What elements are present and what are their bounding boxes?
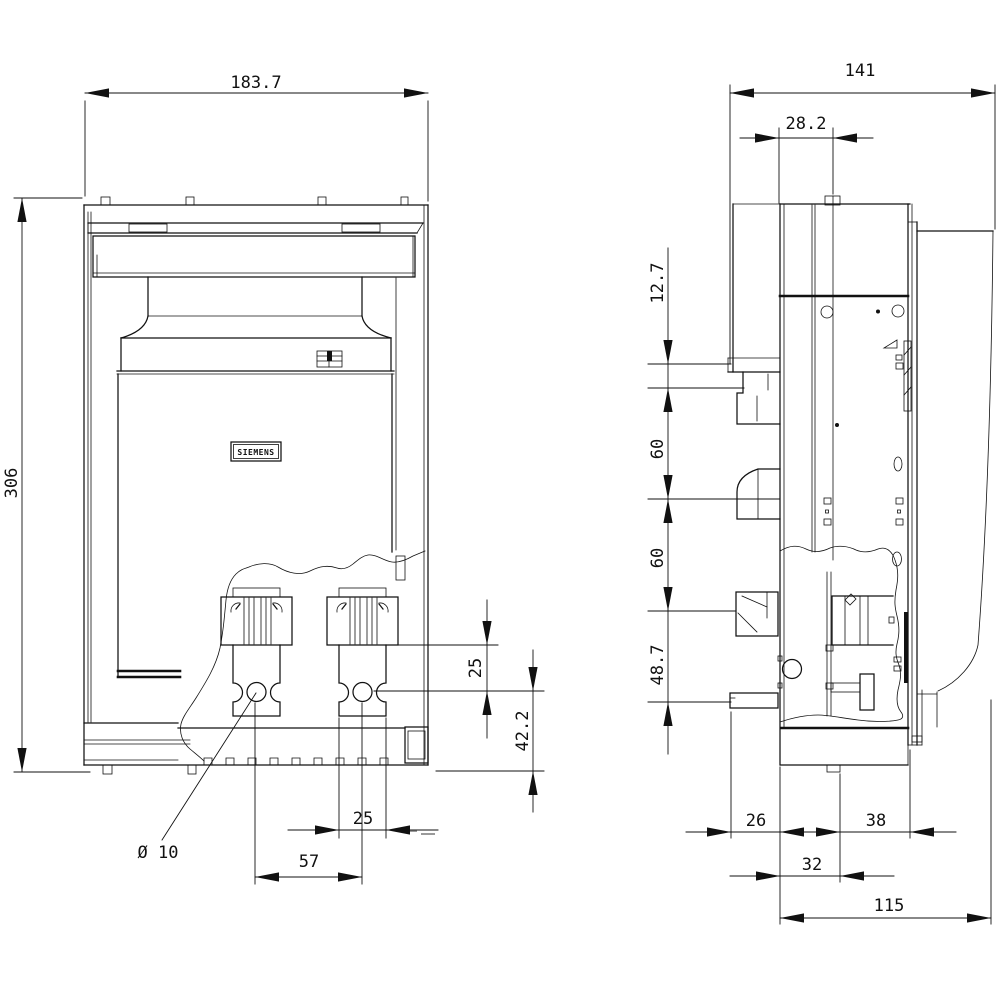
dim-label-mounting-depth: 115	[874, 896, 905, 916]
dim-label-side-depth: 141	[845, 61, 876, 81]
dim-label-base-rear: 38	[866, 811, 886, 831]
dim-side-depth: 141	[730, 61, 995, 364]
front-view: SIEMENS	[2, 73, 544, 884]
drawing-canvas: SIEMENS	[0, 0, 1000, 1000]
dim-label-bottom-terminal: 48.7	[648, 645, 668, 686]
dim-label-handle-offset: 28.2	[786, 114, 827, 134]
front-terminals	[221, 588, 398, 716]
dim-label-terminal-width: 25	[353, 809, 373, 829]
side-break-line	[780, 546, 903, 722]
dim-label-spacing-lower: 60	[648, 548, 668, 568]
din-rail-teeth	[204, 758, 388, 765]
dim-label-base-front: 26	[746, 811, 766, 831]
dim-label-terminal-pitch: 57	[299, 852, 319, 872]
dim-terminal-chain: 12.7 60 60 48.7	[648, 248, 780, 754]
dim-label-front-height: 306	[2, 468, 22, 499]
dim-hole-to-bottom: 42.2	[436, 650, 544, 812]
front-break-line	[180, 551, 425, 761]
dim-label-block-to-hole: 25	[466, 658, 486, 678]
dim-terminal-pitch: 57	[255, 703, 362, 884]
terminal-2	[327, 588, 398, 716]
vent-grid-icon	[317, 351, 342, 367]
dim-label-hole-to-bottom: 42.2	[513, 711, 533, 752]
technical-drawing: SIEMENS	[0, 0, 1000, 1000]
dim-front-width: 183.7	[85, 73, 428, 201]
dim-label-top-terminal: 12.7	[648, 263, 668, 304]
side-details	[778, 305, 911, 716]
front-base	[84, 723, 435, 835]
dim-label-base-slot: 32	[802, 855, 822, 875]
dim-handle-offset: 28.2	[740, 114, 873, 203]
side-mounting-plate	[908, 222, 993, 745]
dim-label-spacing-upper: 60	[648, 439, 668, 459]
dim-base-row2: 32	[730, 855, 894, 881]
dim-label-hole-diameter: Ø 10	[138, 843, 179, 863]
siemens-logo: SIEMENS	[231, 442, 281, 461]
dim-terminal-width: 25	[288, 718, 438, 838]
front-outline	[84, 197, 428, 774]
dim-base-row1: 26 38	[686, 712, 956, 924]
side-outline	[733, 196, 922, 772]
terminal-1	[221, 588, 292, 716]
dim-front-height: 306	[2, 198, 90, 772]
hole-diameter-callout: Ø 10	[138, 693, 256, 863]
side-terminal-shelves	[728, 358, 780, 708]
dim-label-front-width: 183.7	[230, 73, 281, 93]
brand-text: SIEMENS	[237, 448, 274, 457]
side-view: 141 28.2 12.7 60 60 48.7	[648, 61, 995, 924]
